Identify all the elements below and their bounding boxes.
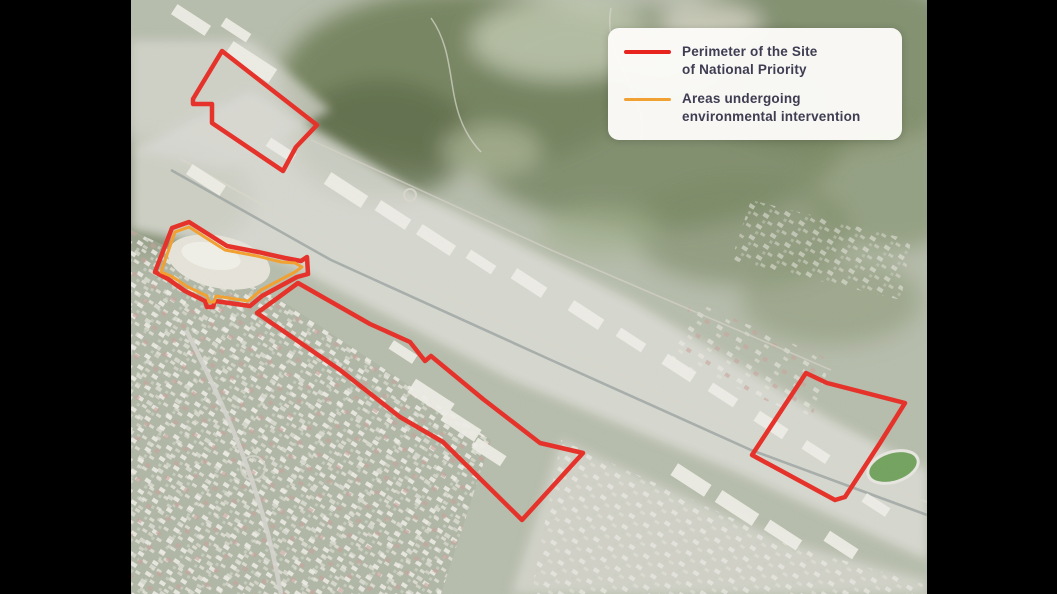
environmental-intervention-label: Areas undergoing environmental intervent… [682,90,860,126]
environmental-intervention-swatch [624,98,671,101]
perimeter-north-sector [193,51,317,171]
perimeter-east-sector [752,373,905,500]
satellite-map: Perimeter of the Site of National Priori… [131,0,927,594]
legend-item-environmental-intervention: Areas undergoing environmental intervent… [624,90,886,126]
perimeter-central-sector [257,283,583,520]
legend-item-site-perimeter: Perimeter of the Site of National Priori… [624,43,886,79]
site-perimeter-swatch [624,50,671,54]
slide-frame: Perimeter of the Site of National Priori… [0,0,1057,594]
site-perimeter-label: Perimeter of the Site of National Priori… [682,43,818,79]
map-legend: Perimeter of the Site of National Priori… [608,28,902,140]
